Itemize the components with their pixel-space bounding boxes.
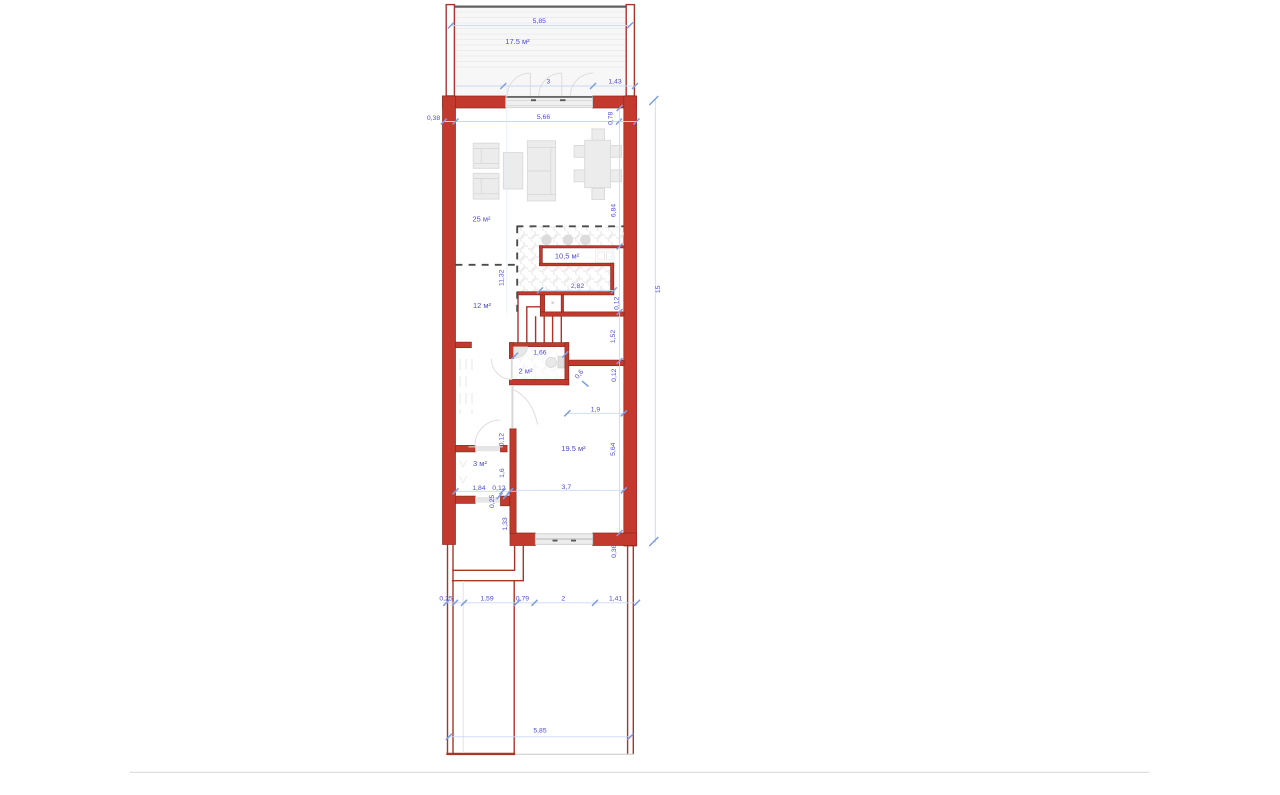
svg-text:1,41: 1,41: [609, 595, 622, 602]
svg-text:6,84: 6,84: [611, 204, 618, 217]
svg-text:0,12: 0,12: [498, 433, 505, 446]
svg-text:17.5 м²: 17.5 м²: [505, 37, 530, 46]
svg-text:0,25: 0,25: [489, 495, 496, 508]
svg-text:5,66: 5,66: [537, 114, 550, 121]
svg-text:1,84: 1,84: [472, 485, 485, 492]
svg-text:0,78: 0,78: [607, 111, 614, 124]
svg-text:1,9: 1,9: [591, 407, 601, 414]
svg-text:0,25: 0,25: [439, 595, 452, 602]
svg-text:5,64: 5,64: [610, 442, 617, 455]
svg-text:3 м²: 3 м²: [473, 459, 487, 468]
svg-text:0,12: 0,12: [611, 368, 618, 381]
svg-text:12 м²: 12 м²: [473, 301, 492, 310]
svg-text:1,33: 1,33: [502, 517, 509, 530]
svg-text:11,32: 11,32: [498, 269, 505, 286]
svg-text:15: 15: [655, 285, 662, 293]
svg-text:19.5 м²: 19.5 м²: [561, 444, 586, 453]
svg-text:0,79: 0,79: [516, 595, 529, 602]
svg-text:1,66: 1,66: [533, 349, 546, 356]
svg-text:5,85: 5,85: [533, 18, 546, 25]
svg-text:0,38: 0,38: [427, 115, 440, 122]
svg-text:10,5 м²: 10,5 м²: [555, 252, 580, 261]
svg-text:0,36: 0,36: [611, 544, 618, 557]
svg-text:1,43: 1,43: [608, 79, 621, 86]
svg-text:1,6: 1,6: [499, 468, 506, 478]
svg-text:1,52: 1,52: [610, 330, 617, 343]
svg-text:5,85: 5,85: [533, 727, 546, 734]
svg-text:3,7: 3,7: [562, 484, 572, 491]
svg-text:1,59: 1,59: [480, 595, 493, 602]
svg-text:2,82: 2,82: [571, 283, 584, 290]
svg-text:2: 2: [561, 595, 565, 602]
svg-text:0,12: 0,12: [613, 296, 620, 309]
svg-text:0,12: 0,12: [492, 485, 505, 492]
svg-text:25 м²: 25 м²: [472, 215, 491, 224]
svg-text:3: 3: [547, 79, 551, 86]
svg-text:2 м²: 2 м²: [519, 367, 533, 376]
